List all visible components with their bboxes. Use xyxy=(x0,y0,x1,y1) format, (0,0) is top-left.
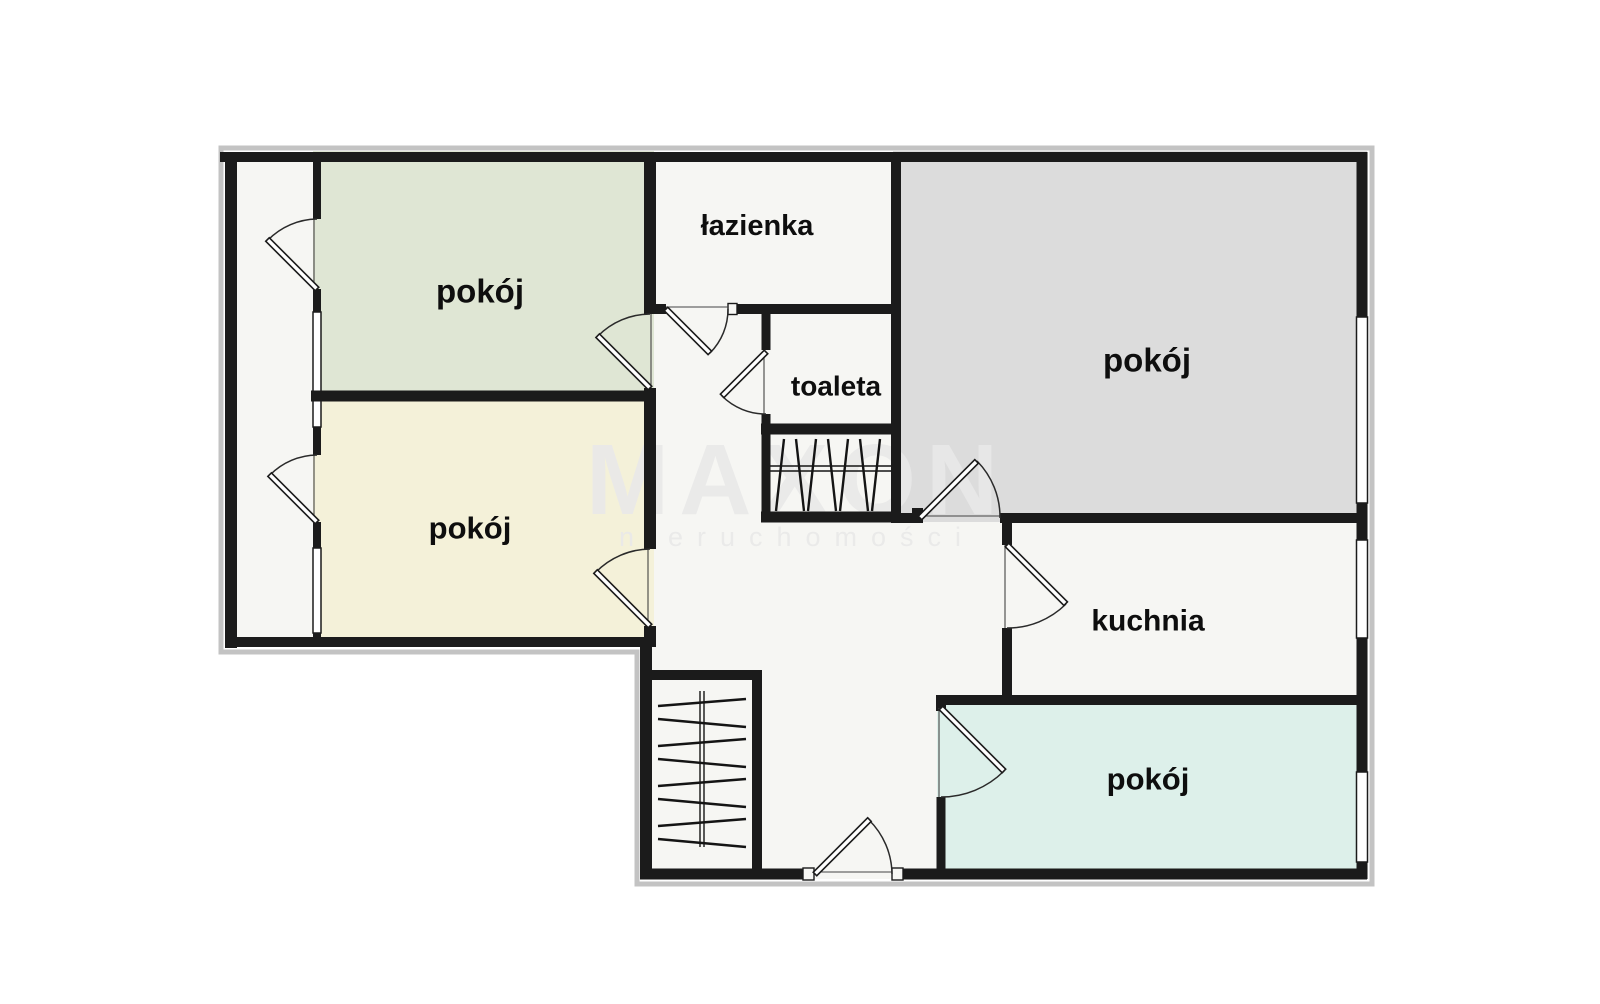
room-label-bottom-right: pokój xyxy=(1107,762,1190,797)
room-label-bathroom: łazienka xyxy=(701,210,815,242)
watermark-subtitle: nieruchomości xyxy=(619,522,975,552)
room-label-mid-left: pokój xyxy=(429,511,512,546)
entrance-jamb-right xyxy=(892,868,903,880)
room-label-kitchen: kuchnia xyxy=(1091,605,1205,638)
floor-plan-drawing: MAXON nieruchomości xyxy=(0,0,1600,1004)
floor-plan-page: MAXON nieruchomości xyxy=(0,0,1600,1004)
room-bottom-right-window xyxy=(1357,772,1368,862)
balcony-window-bottom xyxy=(313,548,321,633)
balcony-window-top xyxy=(313,312,321,427)
room-label-top-right: pokój xyxy=(1103,342,1191,379)
room-label-toilet: toaleta xyxy=(791,371,882,402)
bathroom-jamb xyxy=(728,304,737,315)
kitchen-window xyxy=(1357,540,1368,638)
room-top-right-window xyxy=(1357,317,1368,503)
entrance-jamb-left xyxy=(803,868,814,880)
room-label-top-left: pokój xyxy=(436,273,524,310)
